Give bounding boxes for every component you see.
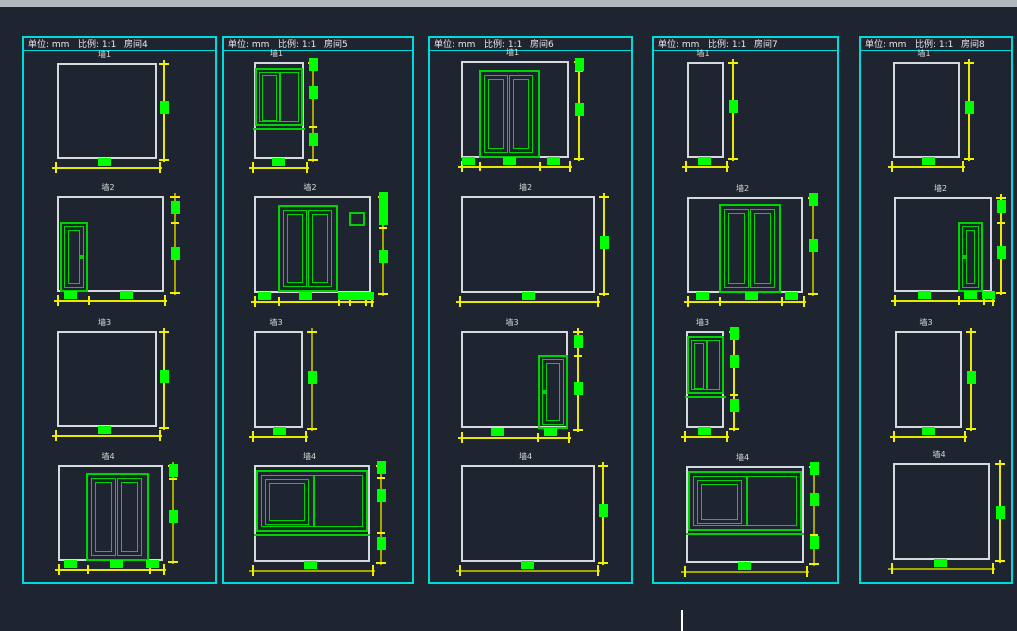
dim-text-block [171,201,180,214]
dim-tick [574,355,582,357]
door-leaf [117,478,142,556]
text-cursor [681,610,683,631]
door[interactable] [60,222,88,292]
door-leaf-panel [728,213,745,284]
dim-text-block [309,133,318,146]
dimension-line-horizontal[interactable] [52,435,162,437]
sliding-window[interactable] [256,470,368,532]
door-leaf [484,75,508,153]
wall-label: 墙1 [270,49,283,58]
dimension-line-vertical[interactable] [733,328,735,431]
dim-tick [372,565,374,576]
dimension-line-horizontal[interactable] [249,436,308,438]
window-sill [685,396,726,398]
dim-tick [378,293,388,295]
dim-text-block [982,291,995,299]
dim-tick [305,431,307,442]
dim-text-block [171,247,180,260]
dim-text-block [308,371,317,384]
dim-text-block [809,193,818,206]
window-mullion [706,340,708,390]
dim-tick [893,431,895,442]
dim-tick [57,295,59,306]
dim-tick [55,162,57,173]
dim-text-block [98,426,111,434]
dim-tick [719,297,721,306]
wall-label: 墙4 [303,452,316,461]
dim-tick [958,296,960,305]
dim-tick [996,292,1006,294]
dim-text-block [575,103,584,116]
dim-text-block [922,427,935,435]
wall-label: 墙1 [98,50,111,59]
dim-text-block [696,292,709,300]
header-divider [430,50,631,51]
header-divider [24,50,215,51]
wall-label: 墙2 [102,183,115,192]
dim-tick [598,562,608,564]
dim-tick [252,565,254,576]
wall-outline[interactable] [254,331,303,428]
dimension-line-vertical[interactable] [813,463,815,566]
dimension-line-horizontal[interactable] [891,300,995,302]
dim-tick [461,432,463,443]
dim-tick [379,227,387,229]
dim-text-block [258,292,271,300]
dim-tick [459,296,461,307]
dim-tick [599,293,609,295]
unit-label: 单位: mm [434,40,475,50]
dim-tick [163,564,165,575]
wall-label: 墙4 [933,450,946,459]
wall-label: 墙4 [102,452,115,461]
small-window[interactable] [349,212,365,226]
dimension-line-horizontal[interactable] [458,437,571,439]
dim-tick [308,159,318,161]
dimension-line-horizontal[interactable] [52,167,162,169]
window-sill [686,533,804,535]
dim-tick [171,222,179,224]
scale-label: 比例: 1:1 [708,40,746,50]
dim-text-block [997,200,1006,213]
dim-tick [573,429,583,431]
dim-tick [377,532,385,534]
dim-tick [726,161,728,172]
door-leaf-panel [312,214,328,283]
window-sash [697,480,742,524]
casement-window[interactable] [687,336,724,394]
double-door[interactable] [479,70,540,158]
dim-text-block [160,101,169,114]
dim-tick [159,63,169,65]
dim-text-block [574,335,583,348]
dim-tick [376,562,386,564]
dim-tick [159,162,161,173]
wall-outline[interactable] [461,196,595,293]
dim-tick [996,197,1006,199]
dim-tick [306,162,308,173]
dim-tick [537,433,539,442]
dim-text-block [738,562,751,570]
dim-text-block [503,157,516,165]
dim-tick [539,162,541,171]
dim-tick [170,196,180,198]
window-sill [253,128,305,130]
dimension-line-horizontal[interactable] [890,436,967,438]
dim-tick [685,161,687,172]
dim-tick [159,159,169,161]
dim-text-block [730,327,739,340]
door-leaf [91,478,116,556]
header-divider [861,50,1011,51]
dim-text-block [273,427,286,435]
unit-label: 单位: mm [658,40,699,50]
dim-text-block [377,489,386,502]
dim-tick [966,331,976,333]
wall-label: 墙2 [304,183,317,192]
dim-text-block [745,292,758,300]
door-leaf-panel [488,79,504,149]
dim-tick [891,161,893,172]
dim-text-block [730,355,739,368]
dim-text-block [377,461,386,474]
window-sash-inner [269,483,305,521]
dim-tick [597,565,599,576]
dim-text-block [698,157,711,165]
dim-tick [307,331,317,333]
dim-tick [159,427,169,429]
wall-label: 墙2 [934,184,947,193]
room-label: 房间8 [961,40,985,50]
wall-outline[interactable] [687,62,724,158]
dimension-line-vertical[interactable] [312,59,314,162]
dim-tick [728,158,738,160]
dim-tick [730,394,738,396]
drawing-canvas[interactable]: 单位: mm比例: 1:1房间4墙1墙2墙3墙4单位: mm比例: 1:1房间5… [0,0,1017,631]
dim-text-block [361,292,374,300]
door-leaf-panel [754,213,771,284]
wall-outline[interactable] [893,62,960,158]
dim-tick [726,431,728,442]
window-sash [262,75,277,121]
wall-outline[interactable] [895,331,962,428]
door-panel [546,363,560,421]
dim-tick [88,296,90,305]
dim-tick [479,162,481,171]
dim-text-block [299,292,312,300]
door-handle [543,390,547,394]
wall-outline[interactable] [461,465,595,562]
dimension-line-horizontal[interactable] [54,300,167,302]
wall-label: 墙3 [270,318,283,327]
dim-text-block [377,537,386,550]
dim-text-block [575,58,584,71]
header-divider [224,50,412,51]
dim-text-block [169,510,178,523]
dim-text-block [309,86,318,99]
dim-tick [307,428,317,430]
dim-tick [168,561,178,563]
dim-tick [964,158,974,160]
dimension-line-horizontal[interactable] [456,570,600,572]
dim-tick [966,428,976,430]
door-panel [966,230,975,284]
room-label: 房间7 [754,40,778,50]
dim-tick [728,62,738,64]
door[interactable] [538,355,568,429]
dim-text-block [146,560,159,568]
scale-label: 比例: 1:1 [78,40,116,50]
dim-text-block [965,101,974,114]
dim-text-block [967,371,976,384]
dim-tick [684,431,686,442]
unit-label: 单位: mm [865,40,906,50]
dim-text-block [522,292,535,300]
dim-tick [809,563,819,565]
dimension-line-horizontal[interactable] [888,568,995,570]
dim-tick [687,296,689,307]
dim-tick [252,431,254,442]
door-leaf-panel [121,482,138,552]
dim-tick [309,126,317,128]
dim-tick [808,293,818,295]
dim-tick [962,161,964,172]
dim-tick [252,162,254,173]
casement-window[interactable] [255,68,303,126]
dim-tick [377,477,385,479]
wall-outline[interactable] [57,331,157,427]
sliding-window[interactable] [688,471,802,531]
dim-tick [891,563,893,574]
dim-tick [995,463,1005,465]
double-door[interactable] [86,473,149,561]
door-leaf-panel [287,214,303,283]
wall-label: 墙2 [736,184,749,193]
dim-text-block [491,428,504,436]
dim-tick [806,566,808,577]
door-leaf [724,209,749,288]
dim-tick [278,297,280,306]
wall-label: 墙1 [697,49,710,58]
wall-label: 墙4 [736,453,749,462]
wall-label: 墙2 [519,183,532,192]
dim-tick [995,560,1005,562]
dim-tick [87,565,89,574]
dim-text-block [810,462,819,475]
room-label: 房间5 [324,40,348,50]
dim-tick [992,563,994,574]
dim-text-block [544,428,557,436]
unit-label: 单位: mm [28,40,69,50]
dimension-line-horizontal[interactable] [458,166,572,168]
dim-tick [568,432,570,443]
dim-text-block [729,100,738,113]
dimension-line-horizontal[interactable] [684,301,806,303]
dim-text-block [98,158,111,166]
dim-text-block [730,399,739,412]
dim-tick [459,565,461,576]
dimension-line-horizontal[interactable] [888,166,965,168]
dim-text-block [934,559,947,567]
wall-label: 墙3 [920,318,933,327]
dim-tick [254,296,256,307]
header-divider [654,50,837,51]
dim-text-block [997,246,1006,259]
window-mullion [746,476,748,526]
door-leaf [509,75,533,153]
dim-text-block [169,464,178,477]
dim-text-block [110,560,123,568]
room-label: 房间4 [124,40,148,50]
dim-tick [170,292,180,294]
door[interactable] [958,222,983,292]
dim-text-block [160,370,169,383]
window-sash-inner [701,484,738,520]
dim-text-block [547,157,560,165]
dim-tick [159,331,169,333]
wall-label: 墙3 [506,318,519,327]
wall-label: 墙3 [696,318,709,327]
wall-label: 墙1 [918,49,931,58]
dim-text-block [810,536,819,549]
dim-text-block [574,382,583,395]
dim-tick [164,295,166,306]
dimension-line-horizontal[interactable] [681,436,729,438]
wall-label: 墙4 [519,452,532,461]
door-handle [79,255,83,259]
scale-label: 比例: 1:1 [278,40,316,50]
dim-tick [573,331,583,333]
dim-tick [894,295,896,306]
dim-text-block [599,504,608,517]
dim-text-block [64,560,77,568]
door-leaf [283,210,307,287]
dim-tick [803,296,805,307]
dim-text-block [996,506,1005,519]
wall-label: 墙1 [506,48,519,57]
dim-text-block [809,239,818,252]
door-handle [963,255,967,259]
dim-text-block [64,291,77,299]
window-mullion [313,475,315,527]
dim-tick [729,428,739,430]
dimension-line-horizontal[interactable] [456,301,600,303]
door-leaf-panel [513,79,529,149]
dim-tick [55,430,57,441]
dim-text-block [120,291,133,299]
window-sash [694,343,704,389]
wall-label: 墙3 [98,318,111,327]
dim-text-block [810,493,819,506]
dim-text-block [379,212,388,225]
dim-text-block [521,561,534,569]
dim-tick [169,478,177,480]
dim-tick [599,196,609,198]
dim-text-block [785,292,798,300]
wall-outline[interactable] [893,463,990,560]
dim-tick [964,62,974,64]
window-sill [254,534,370,536]
window-sash [265,479,309,525]
door-leaf [750,209,775,288]
dim-tick [997,222,1005,224]
dim-text-block [309,58,318,71]
dim-text-block [462,157,475,165]
dimension-line-horizontal[interactable] [249,167,309,169]
dim-tick [569,161,571,172]
room-label: 房间6 [530,40,554,50]
dim-tick [684,566,686,577]
dim-text-block [964,291,977,299]
window-mullion [279,72,281,122]
wall-outline[interactable] [57,63,157,159]
dim-text-block [304,561,317,569]
dim-tick [598,465,608,467]
dim-text-block [918,291,931,299]
dim-tick [964,431,966,442]
door-leaf [308,210,332,287]
dim-text-block [600,236,609,249]
dim-text-block [379,250,388,263]
dim-tick [58,564,60,575]
dim-text-block [272,158,285,166]
dim-tick [597,296,599,307]
dim-tick [781,297,783,306]
dim-text-block [698,427,711,435]
double-door[interactable] [278,205,338,292]
dimension-line-horizontal[interactable] [682,166,729,168]
dim-text-block [922,157,935,165]
dim-tick [159,430,161,441]
dimension-line-horizontal[interactable] [681,571,809,573]
double-door[interactable] [719,204,781,293]
dim-tick [574,158,584,160]
unit-label: 单位: mm [228,40,269,50]
door-leaf-panel [95,482,112,552]
dimension-line-horizontal[interactable] [249,570,375,572]
dimension-line-horizontal[interactable] [251,301,374,303]
